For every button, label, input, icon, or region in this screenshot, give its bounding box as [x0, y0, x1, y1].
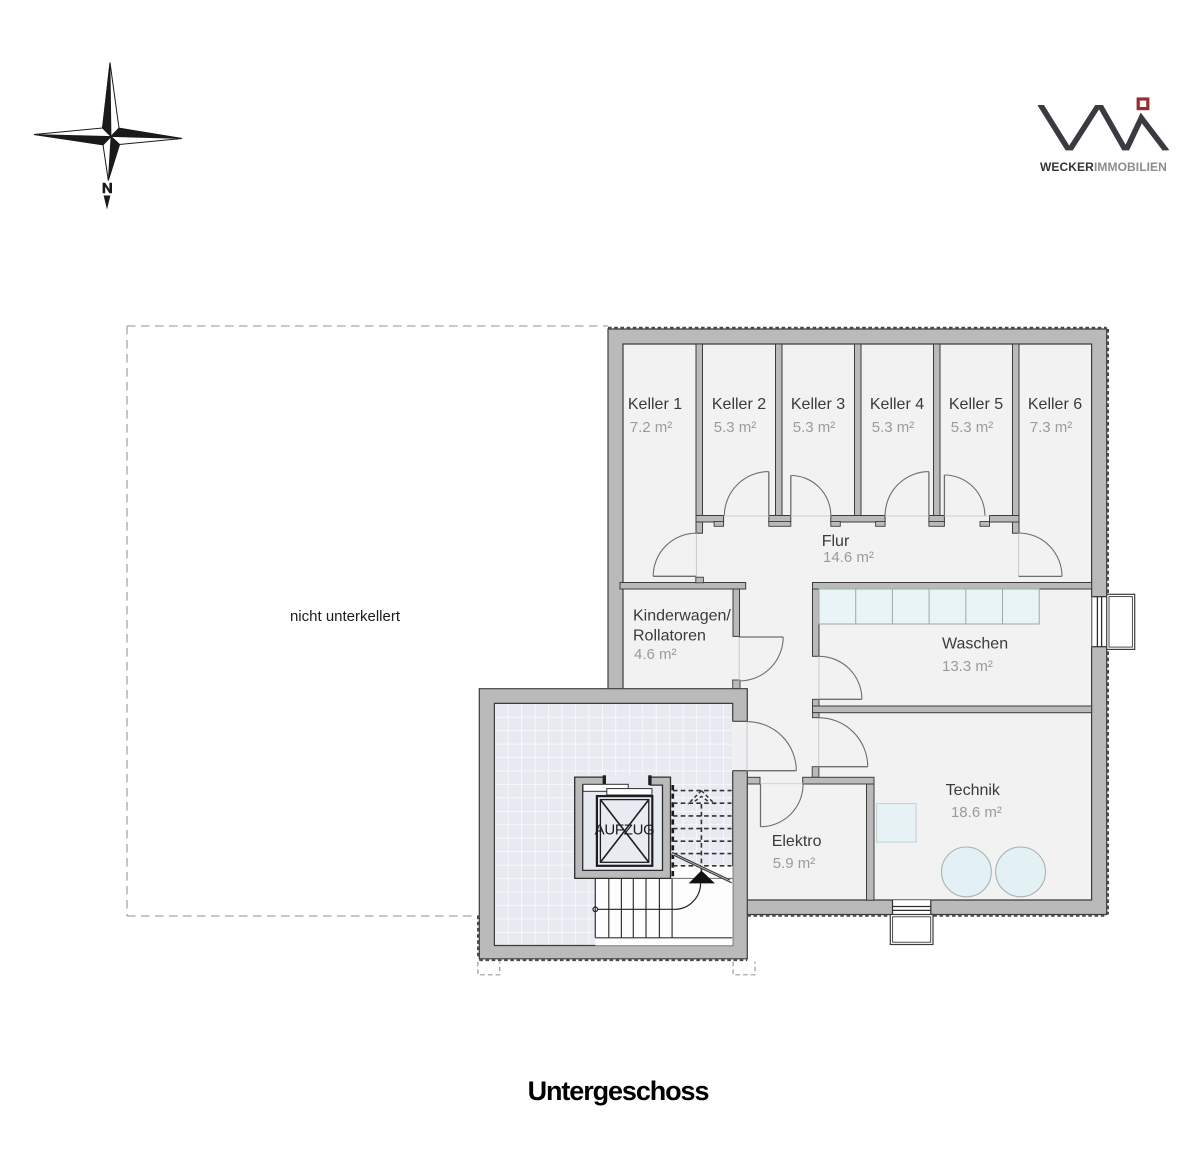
svg-text:Keller 5: Keller 5: [949, 396, 1003, 413]
svg-text:14.6 m²: 14.6 m²: [823, 549, 874, 566]
svg-text:Keller 1: Keller 1: [628, 396, 682, 413]
svg-text:WECKERIMMOBILIEN: WECKERIMMOBILIEN: [1040, 160, 1167, 174]
svg-text:Untergeschoss: Untergeschoss: [528, 1076, 709, 1106]
svg-text:13.3 m²: 13.3 m²: [942, 658, 993, 675]
svg-text:Flur: Flur: [822, 533, 850, 550]
svg-text:AUFZUG: AUFZUG: [595, 822, 655, 839]
svg-text:Keller 3: Keller 3: [791, 396, 845, 413]
svg-text:Waschen: Waschen: [942, 636, 1008, 653]
svg-text:Keller 2: Keller 2: [712, 396, 766, 413]
svg-text:Rollatoren: Rollatoren: [633, 628, 706, 645]
svg-text:5.3 m²: 5.3 m²: [714, 419, 757, 436]
svg-text:Keller 6: Keller 6: [1028, 396, 1082, 413]
svg-text:5.3 m²: 5.3 m²: [793, 419, 836, 436]
svg-text:Kinderwagen/: Kinderwagen/: [633, 608, 731, 625]
svg-text:4.6 m²: 4.6 m²: [634, 646, 677, 663]
svg-text:Keller 4: Keller 4: [870, 396, 924, 413]
svg-text:Technik: Technik: [946, 782, 1001, 799]
svg-text:5.9 m²: 5.9 m²: [773, 855, 816, 872]
svg-text:Elektro: Elektro: [772, 833, 822, 850]
svg-text:7.3 m²: 7.3 m²: [1030, 419, 1073, 436]
svg-text:nicht unterkellert: nicht unterkellert: [290, 608, 401, 625]
svg-text:5.3 m²: 5.3 m²: [872, 419, 915, 436]
svg-text:18.6 m²: 18.6 m²: [951, 804, 1002, 821]
svg-text:7.2 m²: 7.2 m²: [630, 419, 673, 436]
svg-text:5.3 m²: 5.3 m²: [951, 419, 994, 436]
